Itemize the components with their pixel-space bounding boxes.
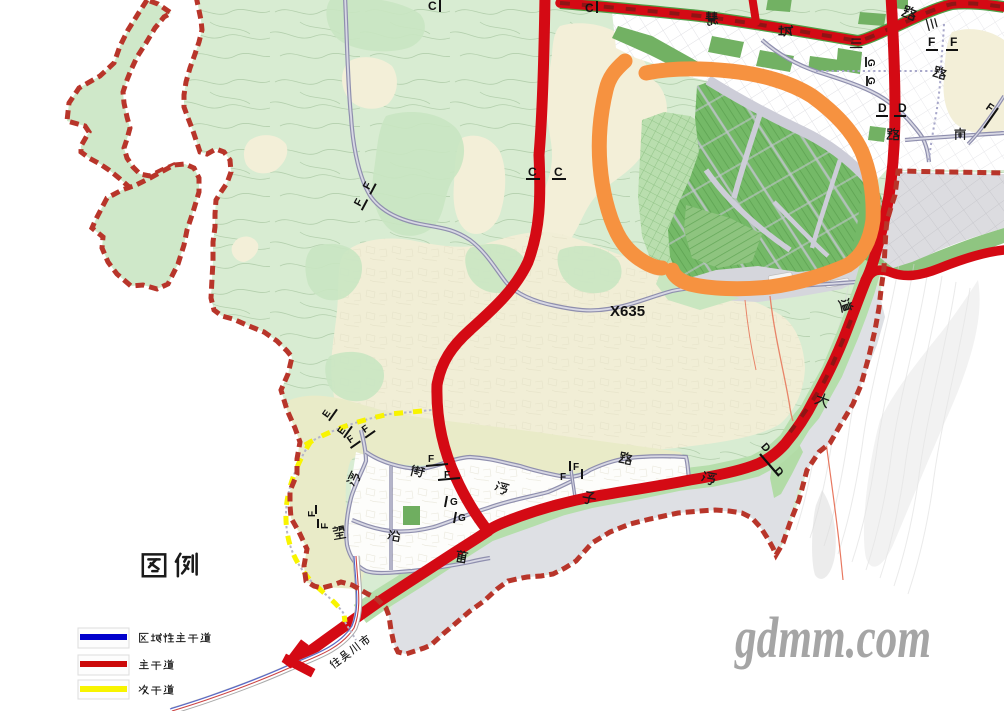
svg-text:D: D bbox=[898, 101, 907, 115]
svg-text:G: G bbox=[450, 497, 458, 508]
svg-text:F: F bbox=[573, 462, 579, 473]
svg-text:C: C bbox=[585, 1, 594, 15]
svg-text:C: C bbox=[528, 165, 537, 179]
svg-text:F: F bbox=[560, 472, 566, 483]
svg-text:C: C bbox=[554, 165, 563, 179]
svg-text:F: F bbox=[307, 511, 318, 517]
svg-text:C: C bbox=[428, 0, 437, 13]
svg-text:G: G bbox=[865, 77, 876, 85]
svg-text:D: D bbox=[878, 101, 887, 115]
svg-text:G: G bbox=[458, 513, 466, 524]
svg-text:F: F bbox=[928, 35, 935, 49]
svg-text:X635: X635 bbox=[610, 303, 645, 320]
svg-text:gdmm.com: gdmm.com bbox=[734, 605, 931, 670]
svg-text:G: G bbox=[865, 59, 876, 67]
svg-text:F: F bbox=[320, 523, 331, 529]
svg-text:F: F bbox=[950, 35, 957, 49]
svg-text:F: F bbox=[428, 454, 434, 465]
